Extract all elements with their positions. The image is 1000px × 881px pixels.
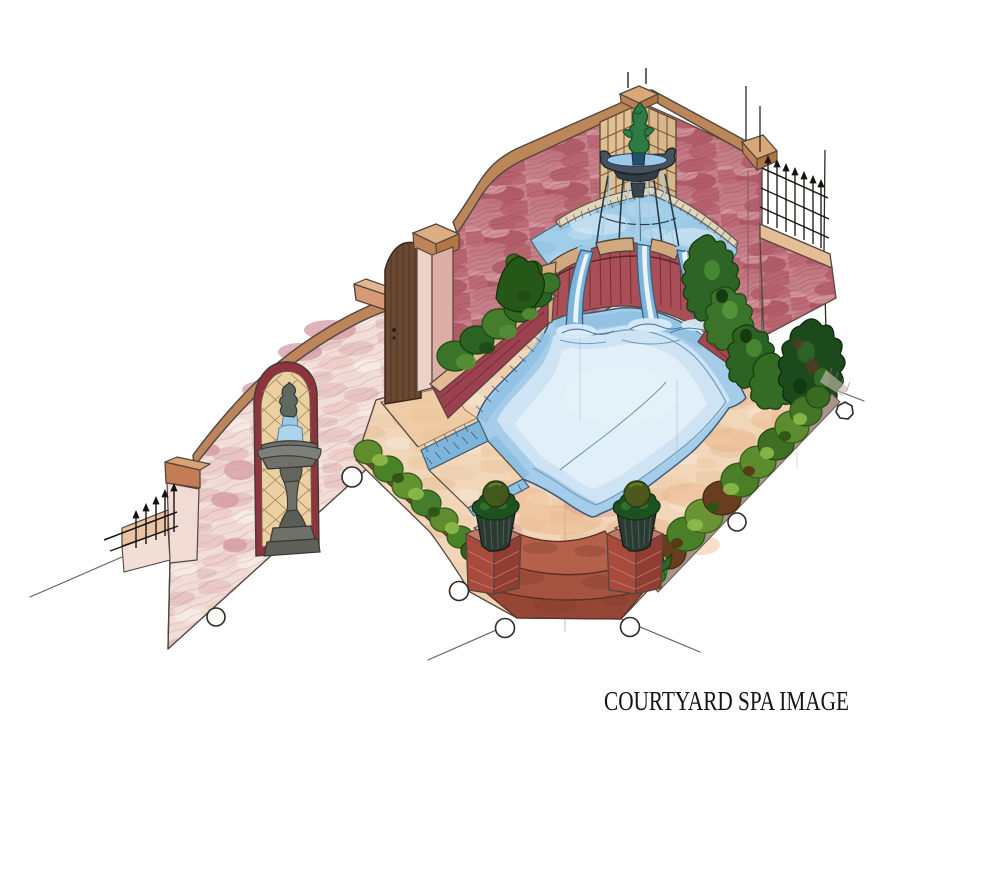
svg-text:COURTYARD SPA IMAGE: COURTYARD SPA IMAGE <box>604 686 849 716</box>
